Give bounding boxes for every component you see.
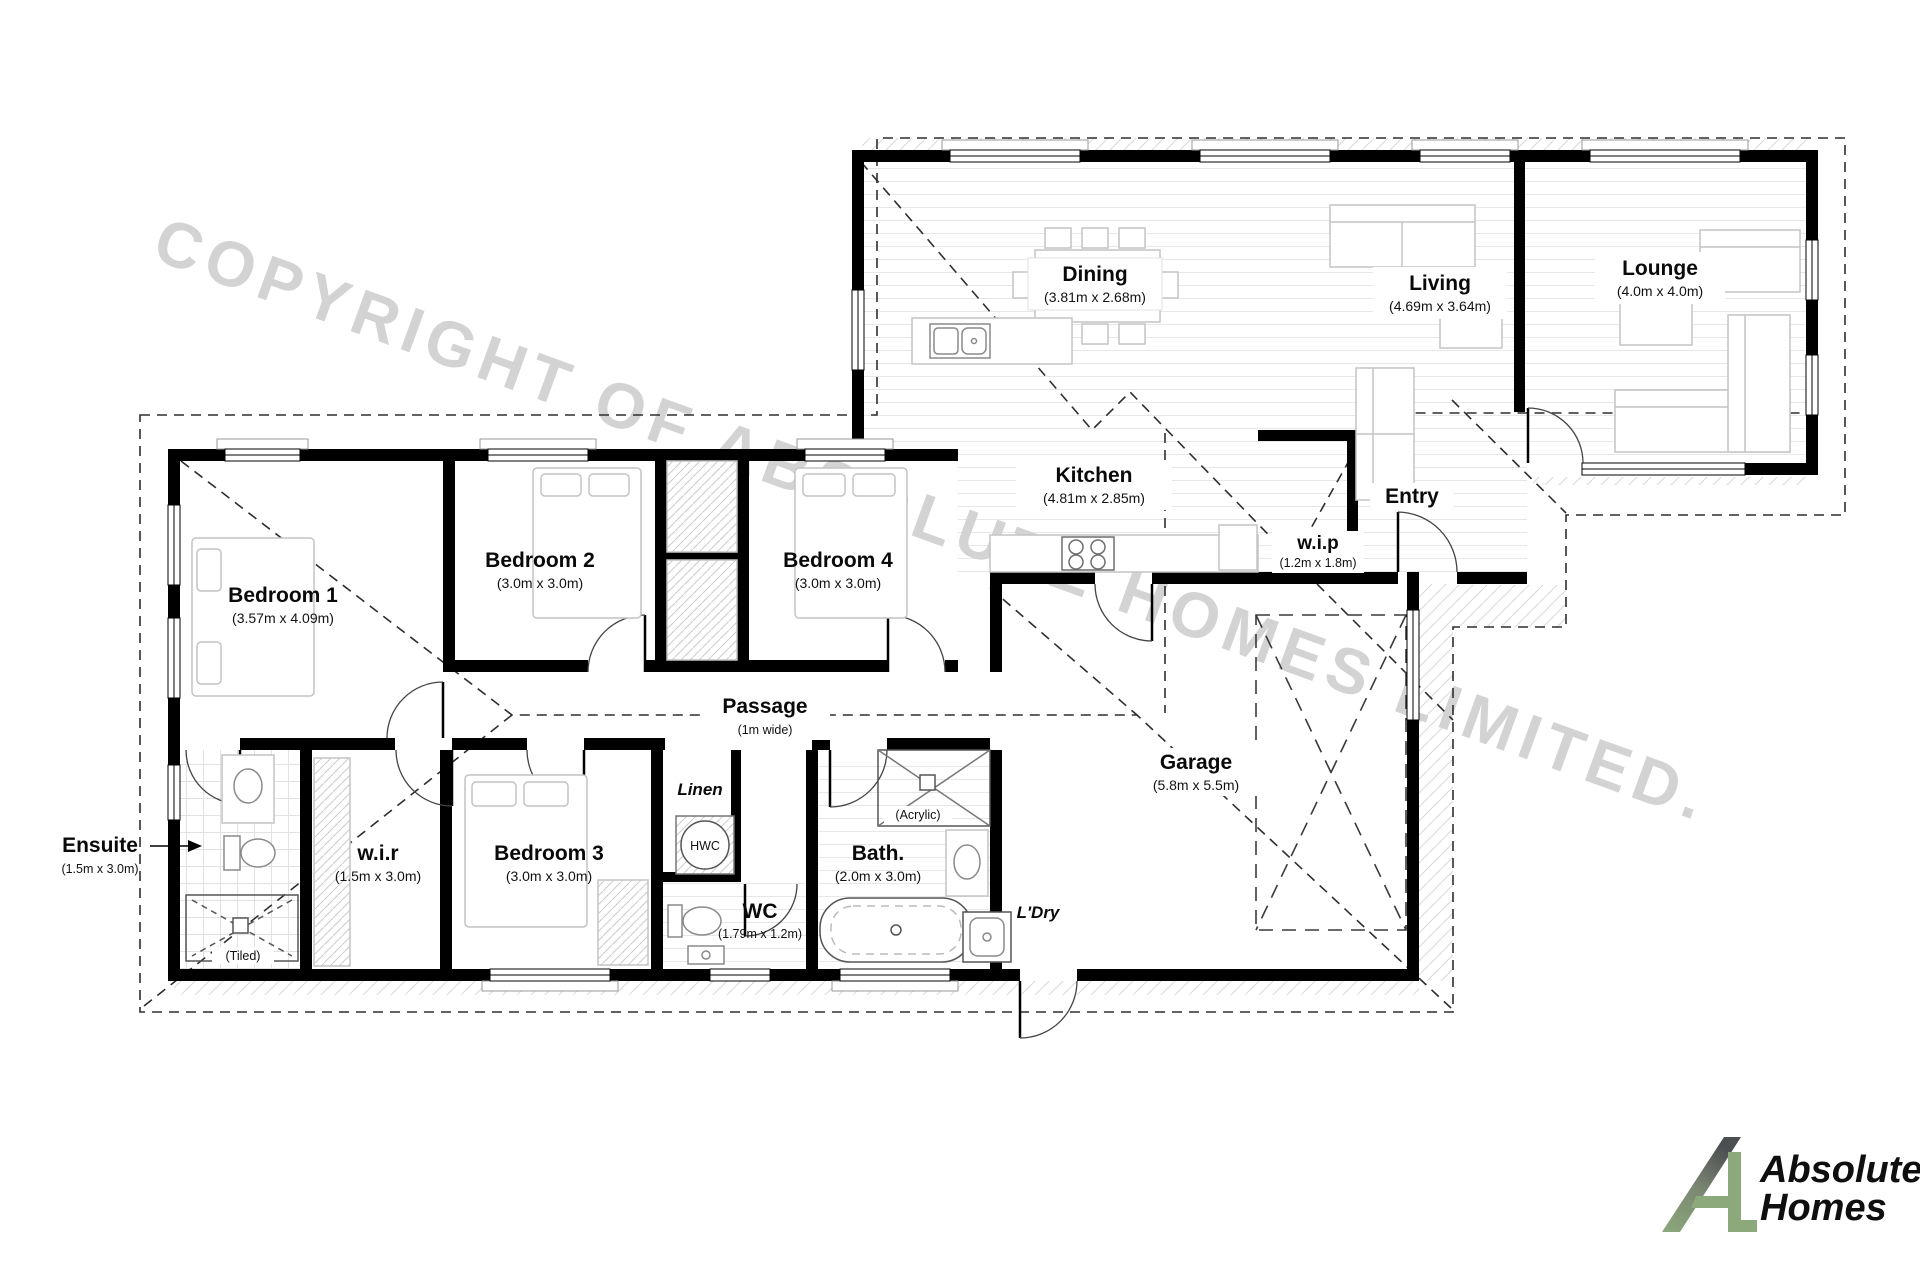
svg-text:Bath.: Bath.: [852, 842, 905, 865]
svg-text:Living: Living: [1409, 272, 1471, 295]
label-entry: Entry: [1385, 485, 1439, 508]
bed-bedroom2: [533, 468, 641, 618]
svg-text:(Tiled): (Tiled): [226, 949, 261, 963]
label-tiled-note: (Tiled): [226, 949, 261, 963]
svg-text:Ensuite: Ensuite: [62, 834, 138, 857]
laundry-tub: [963, 912, 1011, 962]
label-ldry: L'Dry: [1017, 903, 1061, 922]
svg-text:Bedroom 2: Bedroom 2: [485, 549, 595, 572]
svg-text:(3.57m x 4.09m): (3.57m x 4.09m): [232, 610, 334, 626]
logo-mark-icon: [1662, 1137, 1757, 1232]
svg-text:Bedroom 1: Bedroom 1: [228, 584, 338, 607]
svg-text:(4.69m x 3.64m): (4.69m x 3.64m): [1389, 298, 1491, 314]
lounge-coffee-table: [1620, 300, 1692, 345]
svg-text:(Acrylic): (Acrylic): [895, 808, 940, 822]
svg-text:(1.2m x 1.8m): (1.2m x 1.8m): [1279, 556, 1356, 570]
logo-line1: Absolute: [1759, 1149, 1920, 1191]
svg-text:Bedroom 3: Bedroom 3: [494, 842, 604, 865]
svg-text:WC: WC: [743, 900, 778, 923]
fridge: [1219, 525, 1257, 570]
svg-text:Entry: Entry: [1385, 485, 1439, 508]
kitchen-island: [912, 318, 1072, 364]
svg-text:Kitchen: Kitchen: [1055, 464, 1132, 487]
floor-plan-page: COPYRIGHT OF ABSOLUTE HOMES LIMITED.: [0, 0, 1920, 1280]
svg-text:(4.81m x 2.85m): (4.81m x 2.85m): [1043, 490, 1145, 506]
svg-text:(1.5m x 3.0m): (1.5m x 3.0m): [61, 862, 138, 876]
label-bedroom1: Bedroom 1(3.57m x 4.09m): [228, 584, 338, 626]
svg-text:(1.5m x 3.0m): (1.5m x 3.0m): [335, 868, 421, 884]
company-logo: Absolute Homes: [1662, 1137, 1920, 1232]
svg-text:Linen: Linen: [677, 780, 722, 799]
svg-text:Bedroom 4: Bedroom 4: [783, 549, 893, 572]
label-acrylic-note: (Acrylic): [895, 808, 940, 822]
svg-text:Dining: Dining: [1062, 263, 1127, 286]
label-lounge: Lounge(4.0m x 4.0m): [1617, 257, 1703, 299]
label-hwc: HWC: [690, 839, 720, 853]
svg-text:HWC: HWC: [690, 839, 720, 853]
svg-text:(3.0m x 3.0m): (3.0m x 3.0m): [795, 575, 881, 591]
label-bedroom2: Bedroom 2(3.0m x 3.0m): [485, 549, 595, 591]
svg-text:(1m wide): (1m wide): [738, 723, 793, 737]
svg-text:L'Dry: L'Dry: [1017, 903, 1061, 922]
svg-text:w.i.p: w.i.p: [1296, 533, 1339, 554]
logo-line2: Homes: [1760, 1187, 1887, 1229]
svg-text:(5.8m x 5.5m): (5.8m x 5.5m): [1153, 777, 1239, 793]
svg-text:(3.0m x 3.0m): (3.0m x 3.0m): [497, 575, 583, 591]
label-kitchen: Kitchen(4.81m x 2.85m): [1043, 464, 1145, 506]
floor-plan-canvas: COPYRIGHT OF ABSOLUTE HOMES LIMITED.: [0, 0, 1920, 1280]
bed-bedroom4: [795, 468, 907, 618]
label-bedroom4: Bedroom 4(3.0m x 3.0m): [783, 549, 893, 591]
svg-text:(4.0m x 4.0m): (4.0m x 4.0m): [1617, 283, 1703, 299]
svg-text:w.i.r: w.i.r: [356, 842, 398, 865]
svg-text:(3.0m x 3.0m): (3.0m x 3.0m): [506, 868, 592, 884]
svg-text:Lounge: Lounge: [1622, 257, 1698, 280]
label-bedroom3: Bedroom 3(3.0m x 3.0m): [494, 842, 604, 884]
label-garage: Garage(5.8m x 5.5m): [1153, 751, 1239, 793]
label-linen: Linen: [677, 780, 722, 799]
svg-text:(3.81m x 2.68m): (3.81m x 2.68m): [1044, 289, 1146, 305]
svg-text:Passage: Passage: [722, 695, 807, 718]
svg-text:Garage: Garage: [1160, 751, 1232, 774]
svg-text:(2.0m x 3.0m): (2.0m x 3.0m): [835, 868, 921, 884]
svg-text:(1.79m x 1.2m): (1.79m x 1.2m): [718, 927, 802, 941]
